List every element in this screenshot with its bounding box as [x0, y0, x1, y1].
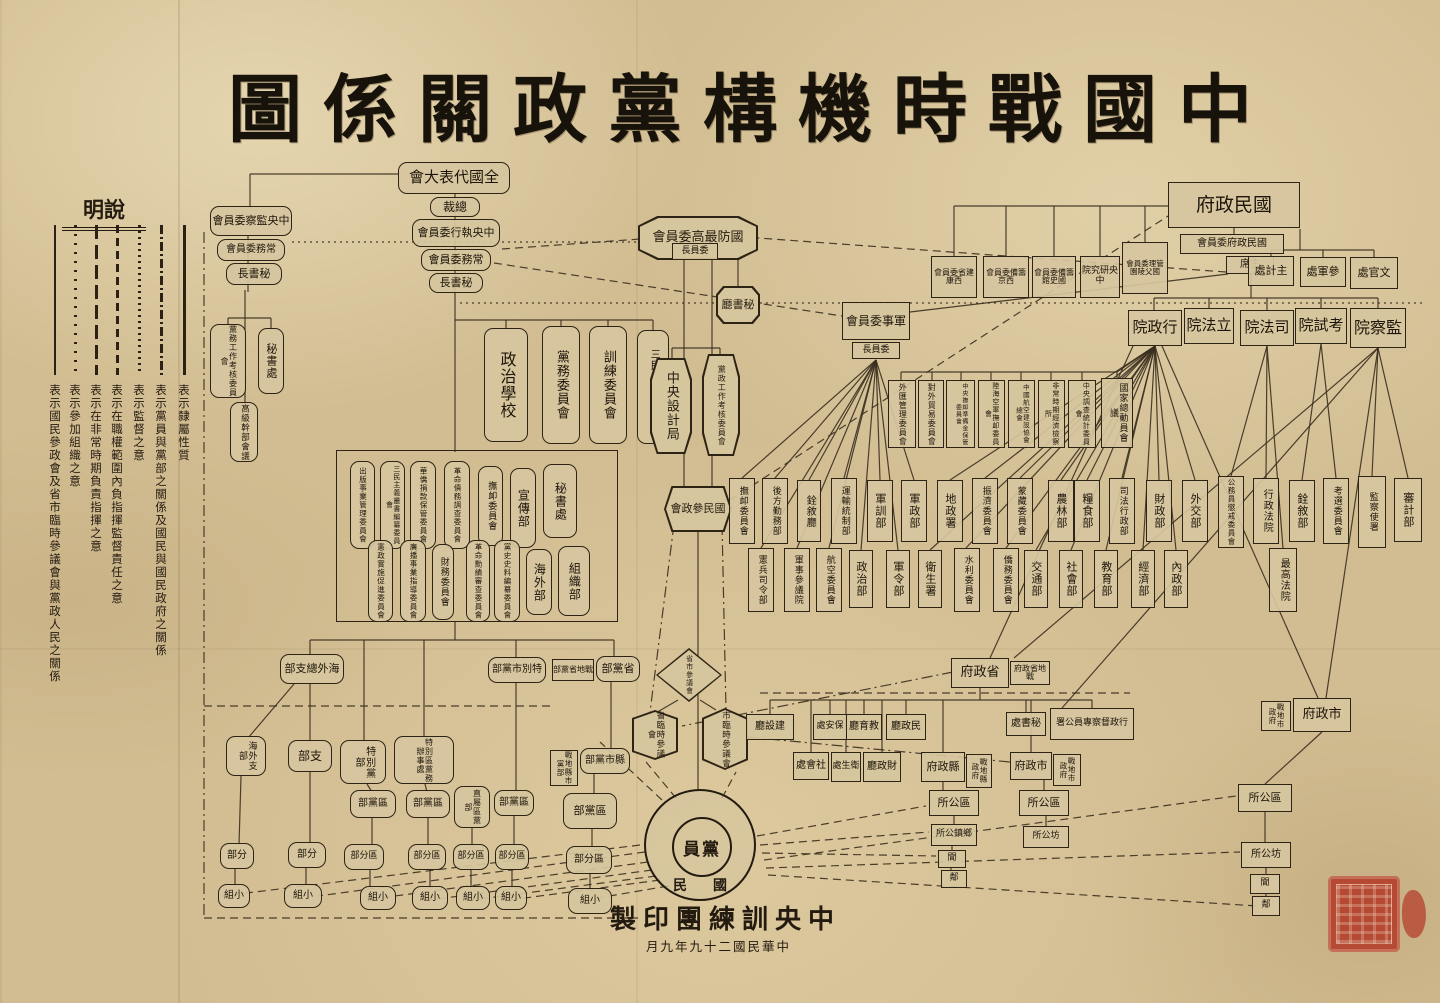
cec-secretary-general: 長書秘 [429, 273, 483, 293]
central-executive-committee: 會員委行執央中 [412, 219, 500, 247]
relief-commission: 振濟委員會 [972, 478, 998, 544]
party-comfort-committee: 撫卹委員會 [478, 466, 503, 546]
overseas-donation-committee: 華僑捐款保管委員會 [410, 461, 436, 549]
party-history-committee: 黨史史料編纂委員會 [494, 540, 520, 622]
quanxu-ting: 銓敘廳 [797, 480, 821, 542]
lin-county: 鄰 [941, 870, 967, 888]
legislative-yuan: 院法立 [1184, 308, 1234, 344]
gendarmerie-command: 憲兵司令部 [748, 548, 774, 612]
military-command-ministry: 軍令部 [886, 550, 910, 608]
war-province-party-hq: 部黨省地戰 [552, 659, 594, 681]
csc-secretary-general: 長書秘 [226, 263, 282, 285]
judicial-administration-ministry: 司法行政部 [1109, 478, 1135, 544]
ndc-chairman: 長員委 [672, 243, 718, 260]
ng-council: 會員委府政民國 [1180, 234, 1284, 254]
legend-council-relation-sample [54, 225, 56, 375]
health-administration: 衛生署 [918, 550, 942, 608]
central-investigation-statistics: 中央調查統計委員會 [1068, 380, 1096, 448]
mac-chairman: 長員委 [852, 342, 900, 359]
legend-emergency-command-label: 表示在非常時期負責指揮之意 [88, 384, 104, 553]
xijing-committee: 會員委備籌京西 [983, 256, 1029, 298]
legend-emergency-command-sample [95, 225, 98, 375]
national-history-committee: 會員委備籌館史國 [1032, 256, 1076, 298]
chief-accounting-office: 處計主 [1248, 256, 1294, 286]
county-government: 府政縣 [921, 752, 965, 782]
qu-fen-3: 部分區 [453, 844, 489, 870]
xiaozu-3: 組小 [412, 886, 448, 910]
direct-qu-party: 直屬區黨部 [454, 786, 490, 828]
forex-management-committee: 外匯管理委員會 [888, 380, 916, 448]
economic-ministry: 經濟部 [1131, 550, 1155, 608]
peoples-political-council: 會政參民國 [664, 486, 732, 532]
social-affairs-chu: 處會社 [793, 752, 829, 780]
legend-participation-sample [74, 225, 77, 375]
lv-national-city: 閭 [1250, 874, 1280, 894]
finance-ting: 廳政財 [863, 752, 901, 782]
legend-direction-in-authority-label: 表示在職權範圍內負指揮監督責任之意 [109, 384, 125, 605]
political-school: 政治學校 [484, 328, 528, 442]
qu-office-county: 所公區 [929, 790, 979, 816]
supreme-court: 最高法院 [1269, 548, 1297, 612]
xikang-committee: 會員委省建康西 [931, 256, 977, 298]
foreign-ministry: 外交部 [1182, 480, 1208, 542]
csc-standing-committee: 會員委務常 [217, 239, 285, 261]
judicial-yuan: 院法司 [1240, 310, 1294, 346]
xiaozu-1: 組小 [284, 884, 322, 908]
transport-control-dept: 運輸統制部 [831, 478, 857, 544]
council-note-diamond: 省市參議會 [656, 648, 722, 702]
province-party-hq: 部黨省 [596, 656, 640, 682]
propaganda-dept: 宣傳部 [510, 468, 536, 548]
citizen-label: 民國 [644, 875, 756, 895]
province-secretariat: 處書秘 [1006, 712, 1046, 736]
overseas-branch: 海外支部 [226, 736, 266, 776]
party-member-citizen-circle: 員黨 民國 [644, 789, 756, 901]
armed-forces-pension-committee: 陸海空軍撫卹委員會 [978, 380, 1005, 448]
lv-county: 閭 [938, 850, 966, 868]
city-government-national: 府政市 [1293, 698, 1351, 732]
city-provisional-council: 市臨時參議會 [702, 708, 748, 770]
central-supervisory-committee: 會員委察監央中 [210, 206, 292, 236]
legend-direction-in-authority-sample [116, 225, 119, 375]
red-seal [1328, 876, 1400, 952]
mongolian-tibetan-commission: 蒙藏委員會 [1007, 478, 1033, 544]
province-provisional-council: 省臨時參議會 [632, 710, 678, 760]
inspection-commissioner-office: 署公員專察督政行 [1050, 708, 1134, 740]
qu-party-3: 部黨區 [494, 790, 534, 816]
qu-fen-4: 部分區 [495, 844, 529, 870]
legend-member-relation-label: 表示黨員與黨部之關係及國民與國民政府之關係 [153, 384, 169, 657]
health-chu: 處生衛 [831, 752, 861, 782]
overseas-fenbu: 部分 [220, 843, 254, 869]
party-finance-committee: 財務委員會 [432, 544, 454, 620]
legend-supervision-label: 表示監督之意 [131, 384, 147, 462]
qu-fen-1: 部分區 [344, 844, 384, 870]
china-aviation-association: 中國航空建設協會總會 [1008, 380, 1035, 448]
overseas-dept: 海外部 [526, 549, 552, 615]
construction-ting: 廳設建 [746, 714, 794, 740]
legend-council-relation-label: 表示國民參政會及省市臨時參議會與黨政人民之關係 [47, 384, 63, 683]
senior-cadre-conference: 高級幹部會議 [230, 402, 258, 462]
xiaozu-5: 組小 [495, 886, 527, 910]
quanxu-ministry: 銓敘部 [1289, 480, 1315, 542]
civil-servant-discipline-committee: 公務員懲戒委員會 [1218, 476, 1244, 548]
qu-fen-2: 部分區 [408, 844, 446, 870]
director-general: 裁總 [430, 197, 480, 217]
war-city-government-provincial: 戰地市政府 [1053, 754, 1081, 786]
control-yuan: 院察監 [1350, 308, 1406, 348]
land-administration: 地政署 [937, 480, 963, 542]
emergency-economic-inspectorate: 非常時期經濟檢察所 [1038, 380, 1065, 448]
constitution-promotion-committee: 憲政實施促進委員會 [368, 540, 393, 622]
military-advisory-council: 軍事參議院 [784, 548, 810, 612]
county-city-party-hq: 部黨市縣 [580, 748, 630, 774]
xiaozu-4: 組小 [456, 886, 490, 910]
training-committee: 訓練委員會 [589, 326, 627, 444]
legend-subordination-label: 表示隸屬性質 [176, 384, 192, 462]
party-work-examination-committee: 黨務工作考核委員會 [210, 324, 246, 398]
interior-ministry: 內政部 [1164, 550, 1188, 608]
aviation-commission: 航空委員會 [816, 548, 842, 612]
revolutionary-debt-committee: 革命債務調查委員會 [444, 461, 470, 549]
special-party-hq: 特別黨部 [340, 740, 386, 784]
legend-supervision-sample [138, 225, 141, 375]
township-office: 所公鎮鄉 [931, 824, 977, 846]
city-government-provincial: 府政市 [1010, 752, 1052, 780]
executive-yuan: 院政行 [1128, 310, 1182, 346]
province-government: 府政省 [951, 658, 1009, 688]
war-city-government-national: 戰地市政府 [1261, 701, 1291, 731]
national-mobilization-conference: 國家總動員會議 [1101, 378, 1133, 448]
national-government: 府政民國 [1168, 182, 1300, 228]
military-training-ministry: 軍訓部 [867, 480, 893, 542]
administrative-court: 行政法院 [1253, 478, 1279, 544]
transport-ministry: 交通部 [1024, 550, 1048, 608]
fang-office-national-city: 所公坊 [1241, 842, 1291, 868]
xiaozu-0: 組小 [218, 884, 250, 908]
broadcast-guidance-committee: 廣播事業指導委員會 [400, 540, 426, 622]
party-member-core: 員黨 [672, 817, 732, 877]
national-congress: 會大表代國全 [398, 162, 510, 194]
agriculture-forestry-ministry: 農林部 [1048, 480, 1074, 542]
qu-party-2: 部黨區 [406, 790, 450, 818]
peace-preservation-office: 處安保 [813, 714, 847, 740]
imprint-date: 月九年九十二國民華中 [646, 936, 791, 955]
examination-selection-committee: 考選委員會 [1323, 478, 1349, 544]
qu-fen-5: 部分區 [566, 846, 612, 874]
lin-national-city: 鄰 [1252, 896, 1280, 916]
military-administration-ministry: 軍政部 [901, 480, 927, 542]
civil-affairs-office: 處官文 [1350, 257, 1398, 289]
cec-standing-committee: 會員委務常 [421, 249, 491, 271]
civil-affairs-ting: 廳政民 [886, 714, 926, 740]
qu-office-national-city: 所公區 [1238, 784, 1292, 812]
organization-dept: 組織部 [558, 546, 590, 616]
overseas-general-branch: 部支總外海 [280, 654, 344, 684]
rear-service-dept: 後方勤務部 [762, 478, 788, 544]
ndc-secretariat: 廳書秘 [716, 286, 760, 324]
zhibu-branch: 部支 [288, 740, 332, 772]
examination-yuan: 院試考 [1295, 308, 1347, 344]
special-city-party-hq: 部黨市別特 [488, 657, 546, 683]
sanmin-book-committee: 三民主義叢書編纂委員會 [380, 461, 405, 549]
academia-sinica: 院究研央中 [1080, 256, 1120, 298]
red-seal-small [1402, 890, 1426, 938]
education-ting: 廳育教 [846, 714, 882, 740]
political-dept-mil: 政治部 [849, 550, 873, 608]
qu-office-city: 所公區 [1019, 790, 1069, 816]
control-commissioner-office: 監察使署 [1358, 476, 1386, 548]
war-province-government: 府政省地戰 [1010, 661, 1050, 685]
publishing-committee: 出版事業管理委員會 [350, 461, 375, 549]
xiaozu-6: 組小 [568, 888, 612, 914]
mausoleum-committee: 會員委理管園陵父國 [1122, 242, 1168, 294]
education-ministry: 教育部 [1094, 550, 1118, 608]
overseas-affairs-commission: 僑務委員會 [993, 548, 1019, 612]
imprint-publisher: 製印團練訓央中 [610, 899, 841, 936]
war-county-government: 戰地縣政府 [966, 754, 992, 788]
military-affairs-commission: 會員委事軍 [842, 302, 910, 340]
legend-subordination-sample [183, 225, 186, 375]
water-conservancy-committee: 水利委員會 [954, 548, 980, 612]
special-party-office: 特別區黨務辦事處 [394, 736, 454, 784]
social-ministry: 社會部 [1059, 550, 1083, 608]
party-govt-assessment-committee: 黨政工作考核委員會 [702, 354, 740, 456]
central-planning-board: 中央設計局 [650, 358, 692, 454]
xiaozu-2: 組小 [360, 886, 396, 910]
party-affairs-committee: 黨務委員會 [542, 326, 580, 444]
qu-party-4: 部黨區 [563, 793, 617, 829]
audit-ministry: 審計部 [1394, 478, 1422, 542]
qu-party-1: 部黨區 [350, 790, 396, 818]
war-county-city-party-hq: 戰地縣市黨部 [550, 750, 578, 786]
pension-committee-mil: 撫卹委員會 [729, 478, 755, 544]
fenbu-branch: 部分 [288, 842, 326, 868]
legend-participation-label: 表示參加組織之意 [67, 384, 83, 488]
revolutionary-merit-committee: 革命勳績審查委員會 [466, 540, 490, 622]
fang-office-city: 所公坊 [1023, 826, 1069, 848]
military-aide-office: 處軍參 [1300, 257, 1346, 287]
finance-ministry: 財政部 [1146, 480, 1172, 542]
wartime-org-chart-poster: 圖係關政黨構機時戰國中 明說 表示隸屬性質表示黨員與黨部之關係及國民與國民政府之… [0, 0, 1440, 1003]
legend-member-relation-sample [160, 225, 163, 375]
secretariat-office: 秘書處 [543, 464, 577, 538]
foreign-trade-committee: 對外貿易委員會 [918, 380, 944, 448]
csc-secretariat: 秘書處 [258, 328, 284, 394]
food-ministry: 糧食部 [1074, 480, 1100, 542]
pension-reserve-fund-committee: 中央撫卹準備金保管委員會 [946, 380, 975, 448]
